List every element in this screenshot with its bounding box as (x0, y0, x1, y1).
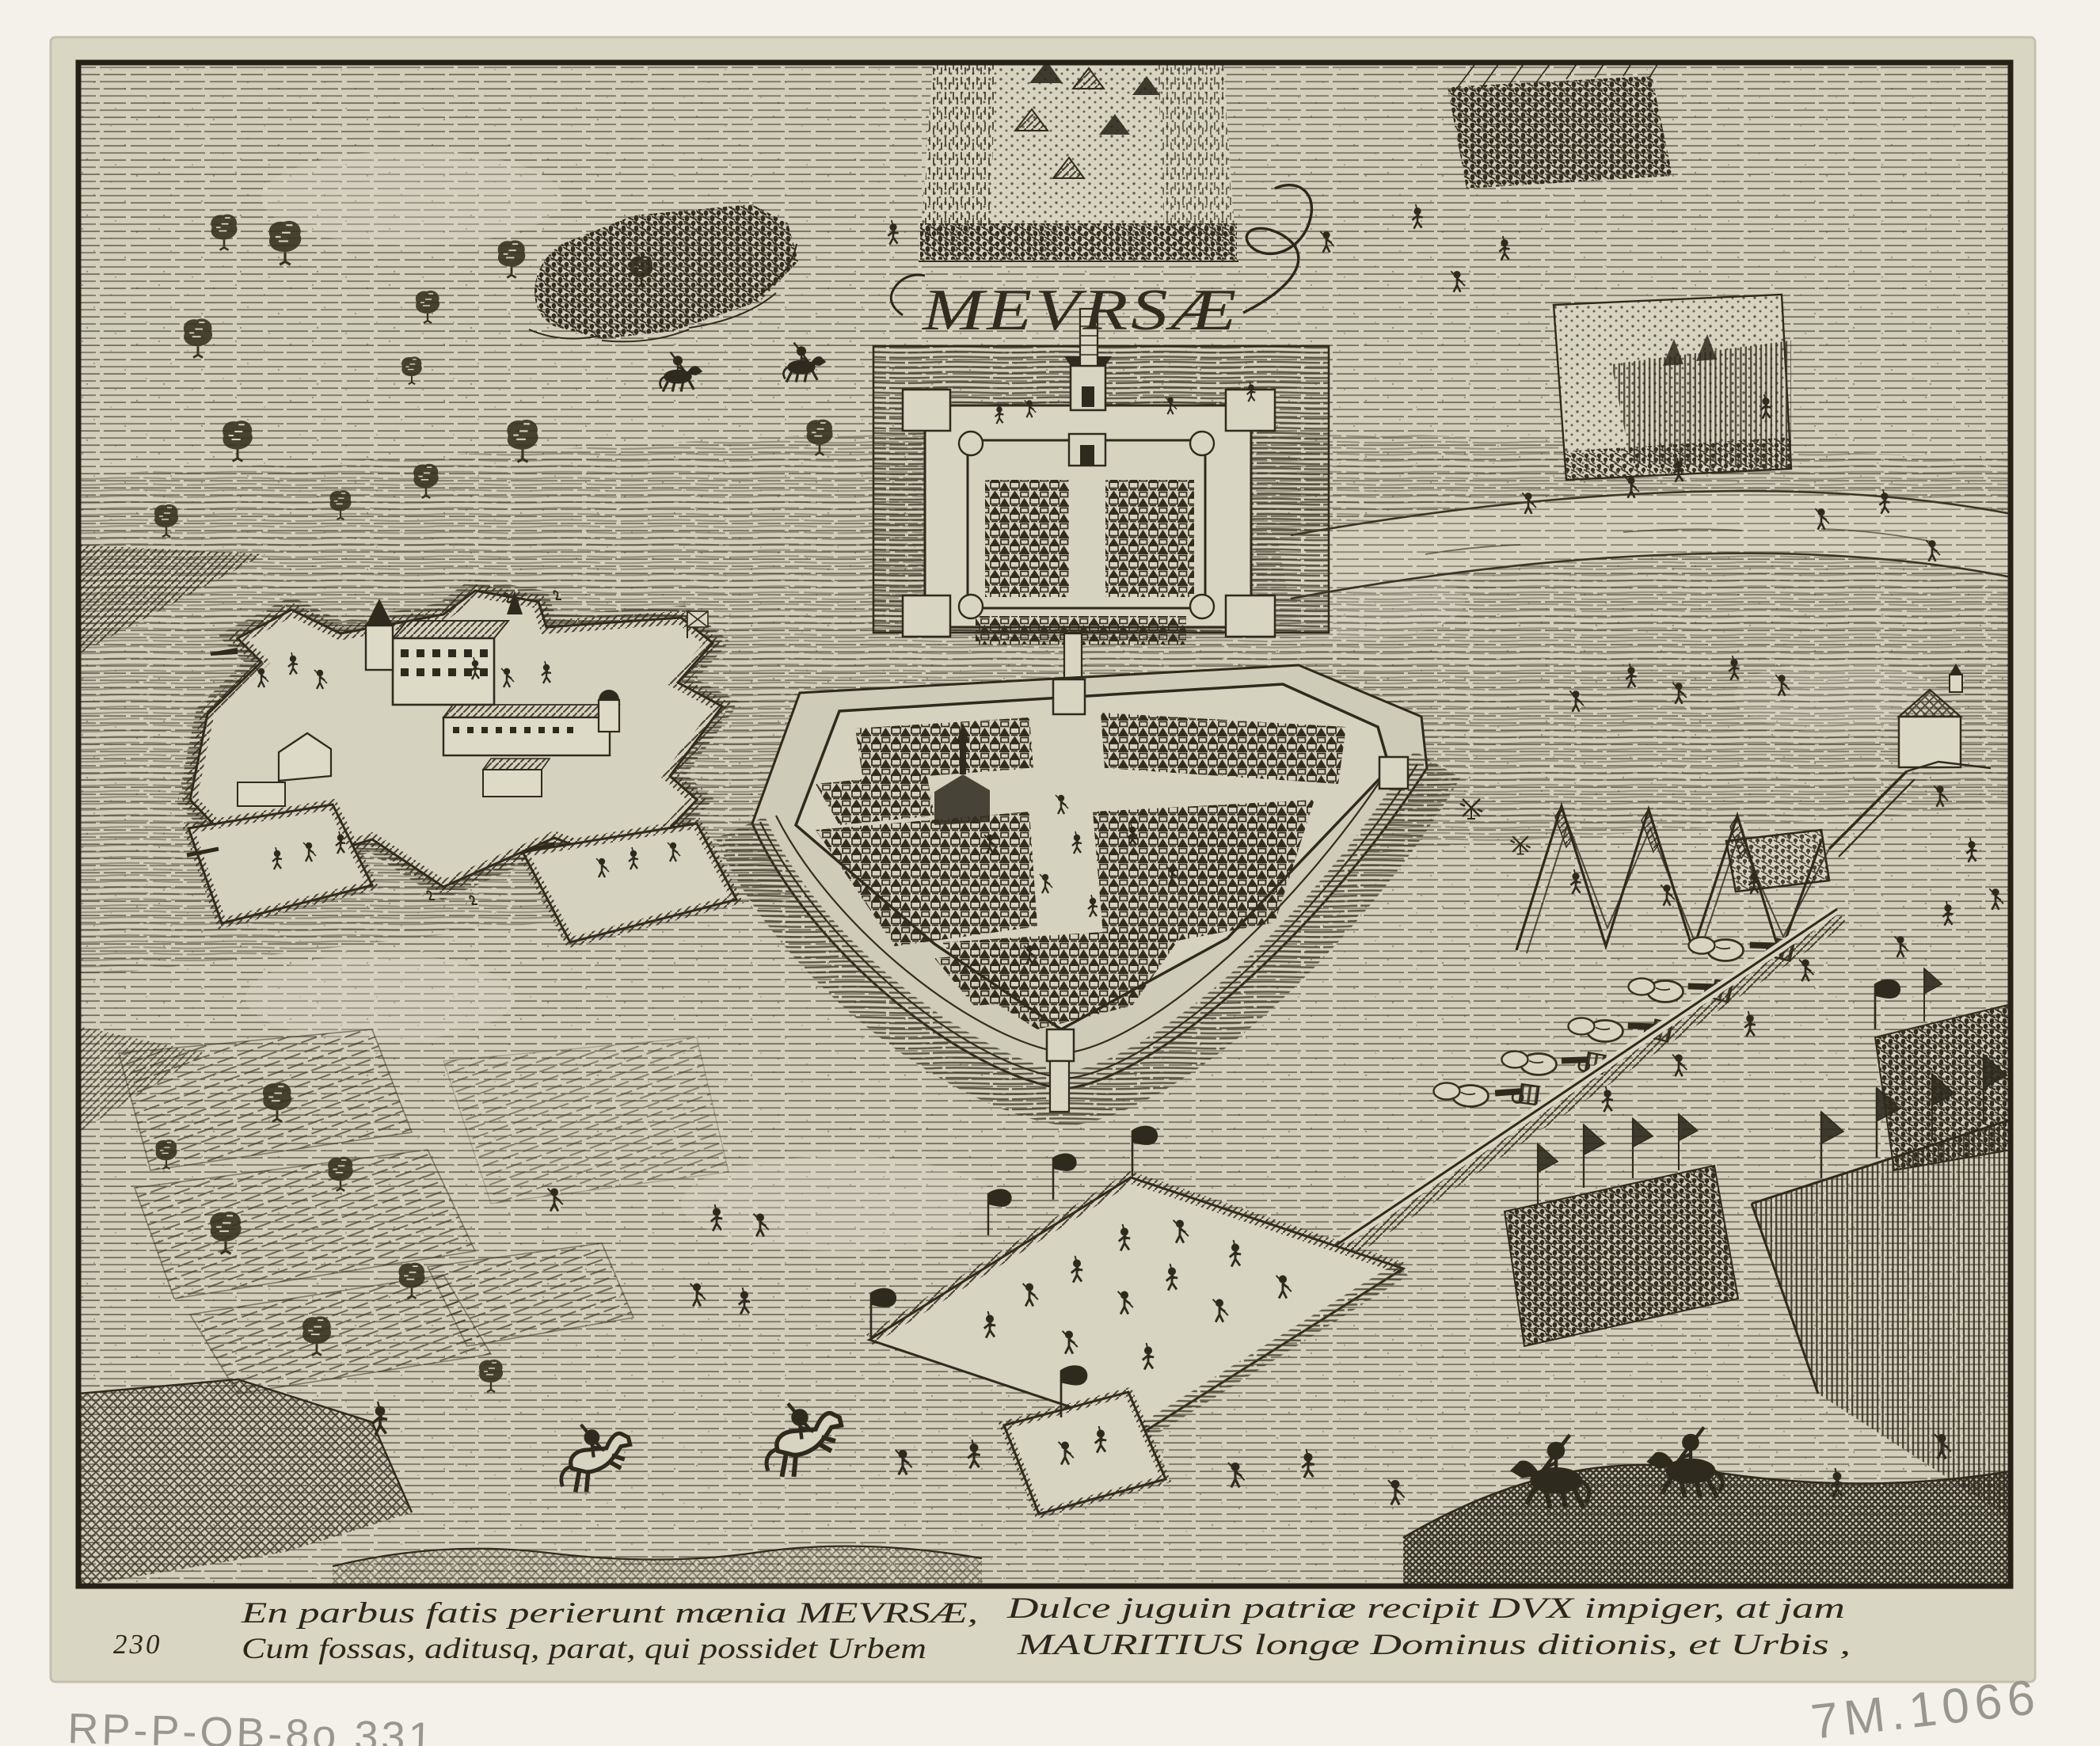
svg-text:MAURITIUS longæ Dominus dition: MAURITIUS longæ Dominus ditionis, et Urb… (1017, 1629, 1851, 1661)
svg-text:MEVRSÆ: MEVRSÆ (922, 278, 1239, 343)
svg-text:Cum fossas, aditusq, parat, qu: Cum fossas, aditusq, parat, qui possidet… (242, 1633, 926, 1665)
svg-text:Dulce juguin patriæ recipit DV: Dulce juguin patriæ recipit DVX impiger,… (1006, 1592, 1845, 1625)
svg-text:230: 230 (113, 1629, 162, 1660)
svg-text:En parbus fatis perierunt mæni: En parbus fatis perierunt mænia MEVRSÆ, (241, 1597, 978, 1630)
